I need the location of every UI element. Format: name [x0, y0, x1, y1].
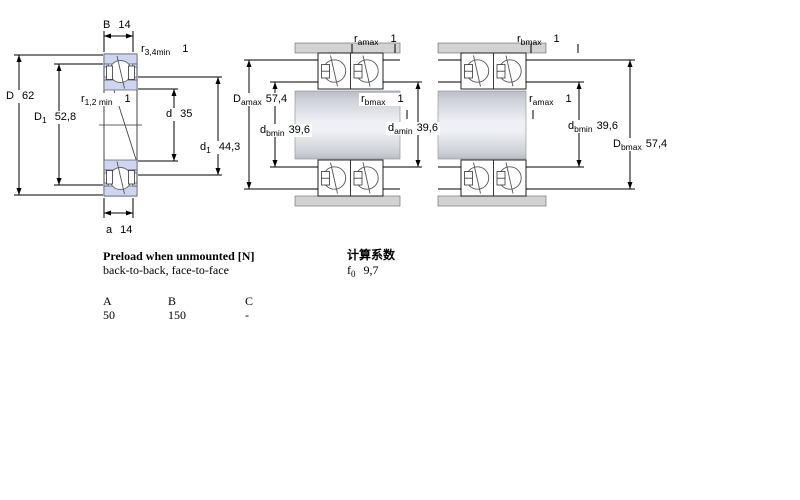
- dim-label-d1: d144,3: [198, 141, 242, 154]
- left-bearing-figure: [99, 54, 142, 196]
- preload-value-a: 50: [103, 308, 168, 323]
- dim-label-d: d35: [164, 108, 194, 121]
- calculation-f0: f09,7: [347, 263, 379, 278]
- dim-label-B: B14: [103, 19, 131, 32]
- housing-bottom: [295, 196, 400, 206]
- dim-label-Dbmax: Dbmax57,4: [611, 138, 669, 151]
- dim-label-r12min: r1,2 min1: [79, 93, 133, 106]
- shaft: [438, 91, 526, 159]
- preload-value-b: 150: [168, 308, 245, 323]
- dim-label-r34min: r3,4min1: [141, 43, 188, 56]
- dim-label-D1: D152,8: [32, 111, 78, 124]
- dim-label-dbmin: dbmin39,6: [258, 124, 312, 137]
- dim-label-ramax: ramax1: [354, 33, 397, 46]
- preload-col-c: C: [245, 294, 253, 309]
- preload-subtitle: back-to-back, face-to-face: [103, 263, 229, 277]
- preload-table-values: 50 150 -: [103, 308, 249, 323]
- preload-col-b: B: [168, 294, 245, 309]
- dim-label-rbmax-2: rbmax1: [517, 33, 560, 46]
- preload-col-a: A: [103, 294, 168, 309]
- calculation-title: 计算系数: [347, 248, 395, 262]
- dim-label-a: a14: [106, 224, 132, 237]
- dim-label-Damax: Damax57,4: [231, 93, 289, 106]
- housing-bottom: [438, 196, 546, 206]
- dim-label-dbmin-2: dbmin39,6: [566, 120, 620, 133]
- preload-table-header: A B C: [103, 294, 253, 309]
- preload-value-c: -: [245, 308, 249, 323]
- dim-label-D: D62: [4, 90, 36, 103]
- bearing-spec-drawing: B14 r3,4min1 D62 D152,8 r1,2 min1 d35 d1…: [0, 0, 800, 500]
- dim-label-ramax-2: ramax1: [527, 93, 574, 106]
- dim-label-rbmax: rbmax1: [359, 93, 406, 106]
- dim-label-damin: damin39,6: [386, 122, 440, 135]
- preload-title: Preload when unmounted [N]: [103, 249, 254, 263]
